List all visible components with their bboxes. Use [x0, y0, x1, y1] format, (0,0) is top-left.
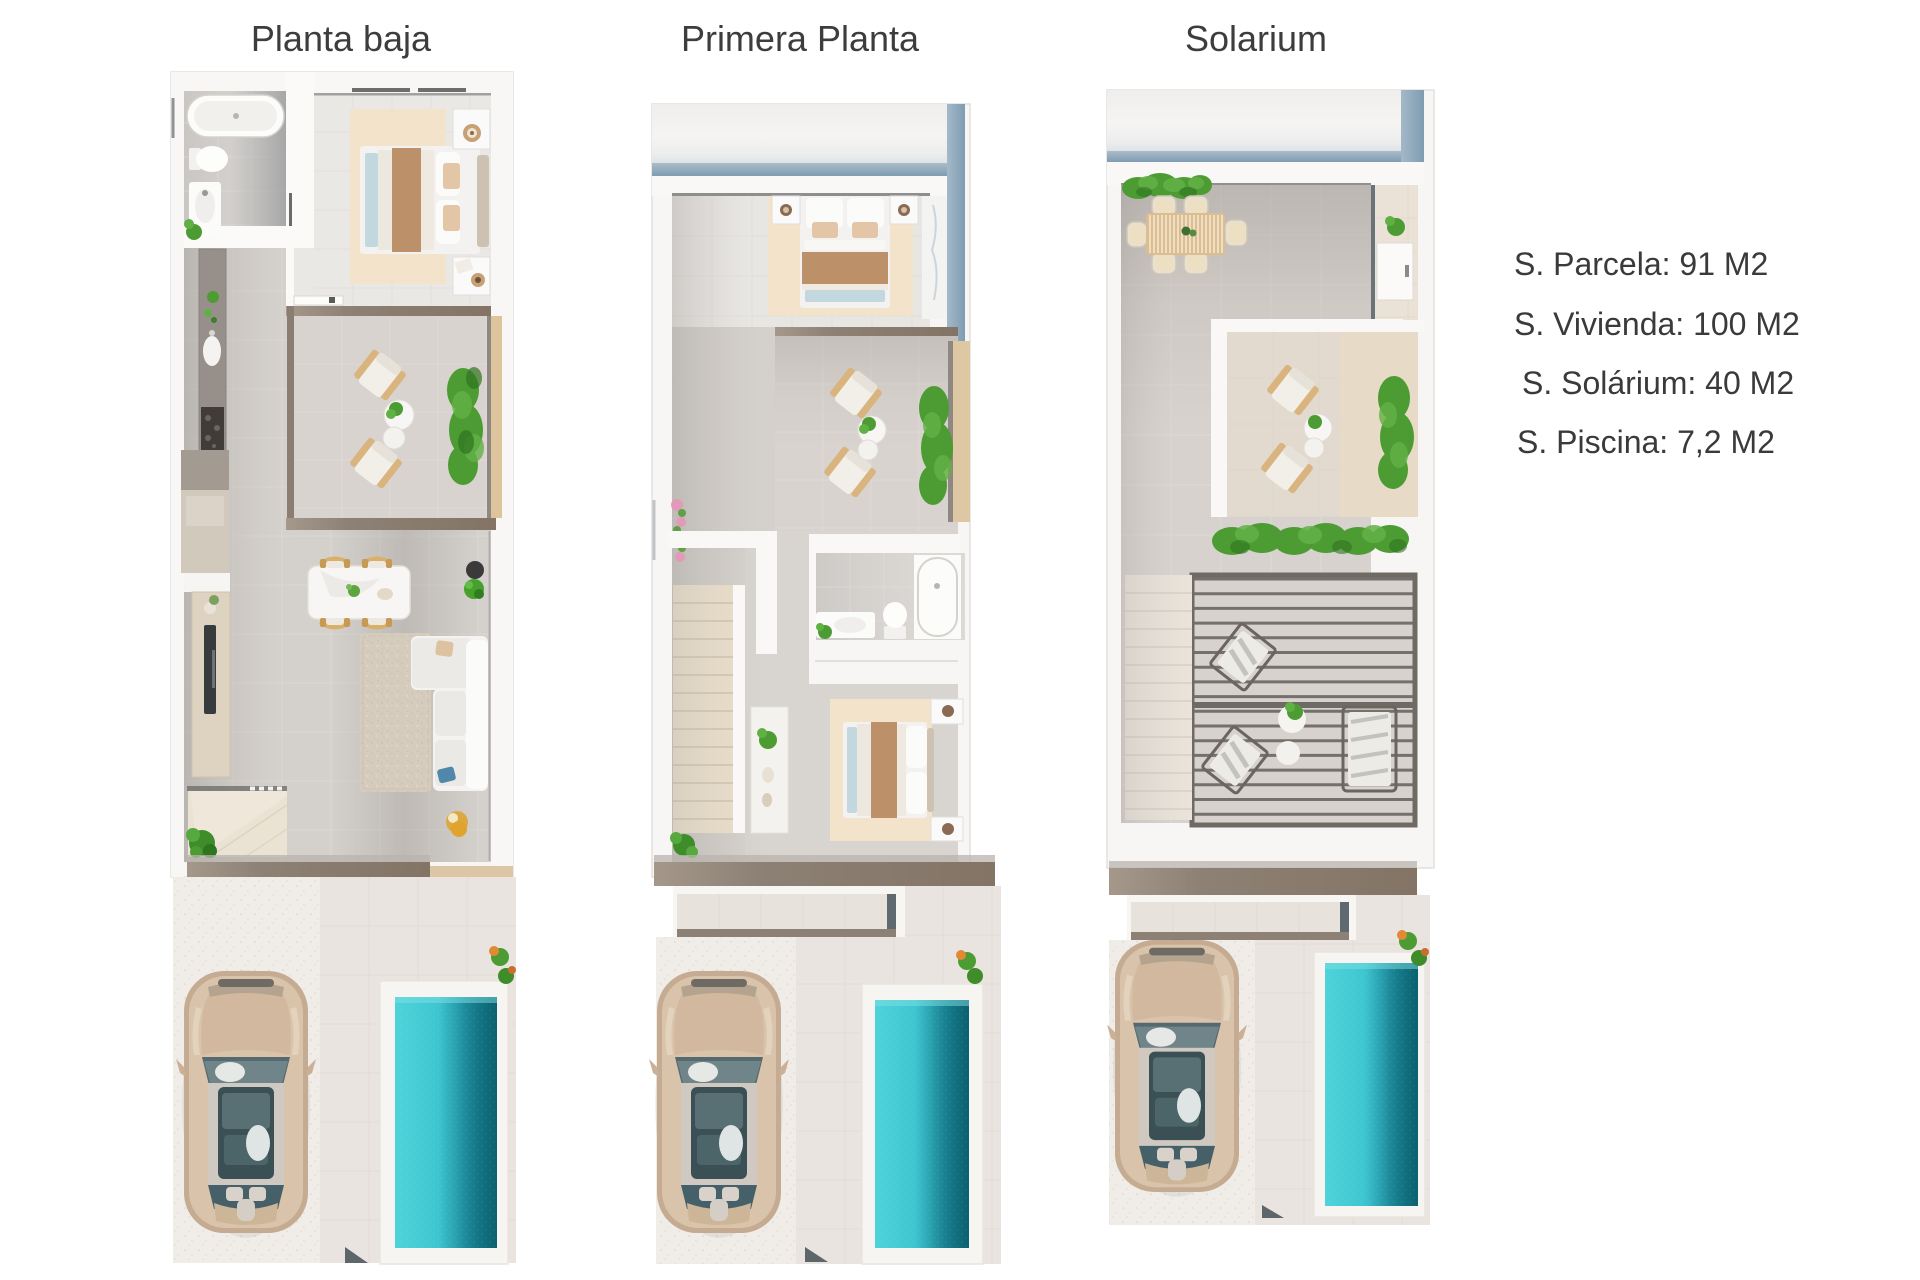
svg-text:S. Vivienda: 100 M2: S. Vivienda: 100 M2 — [1514, 306, 1800, 342]
svg-text:S. Solárium: 40 M2: S. Solárium: 40 M2 — [1522, 365, 1794, 401]
svg-text:Solarium: Solarium — [1185, 18, 1327, 59]
svg-text:S. Parcela: 91 M2: S. Parcela: 91 M2 — [1514, 246, 1768, 282]
svg-text:Planta baja: Planta baja — [251, 18, 432, 59]
svg-text:Primera Planta: Primera Planta — [681, 18, 920, 59]
svg-text:S. Piscina: 7,2 M2: S. Piscina: 7,2 M2 — [1517, 424, 1775, 460]
